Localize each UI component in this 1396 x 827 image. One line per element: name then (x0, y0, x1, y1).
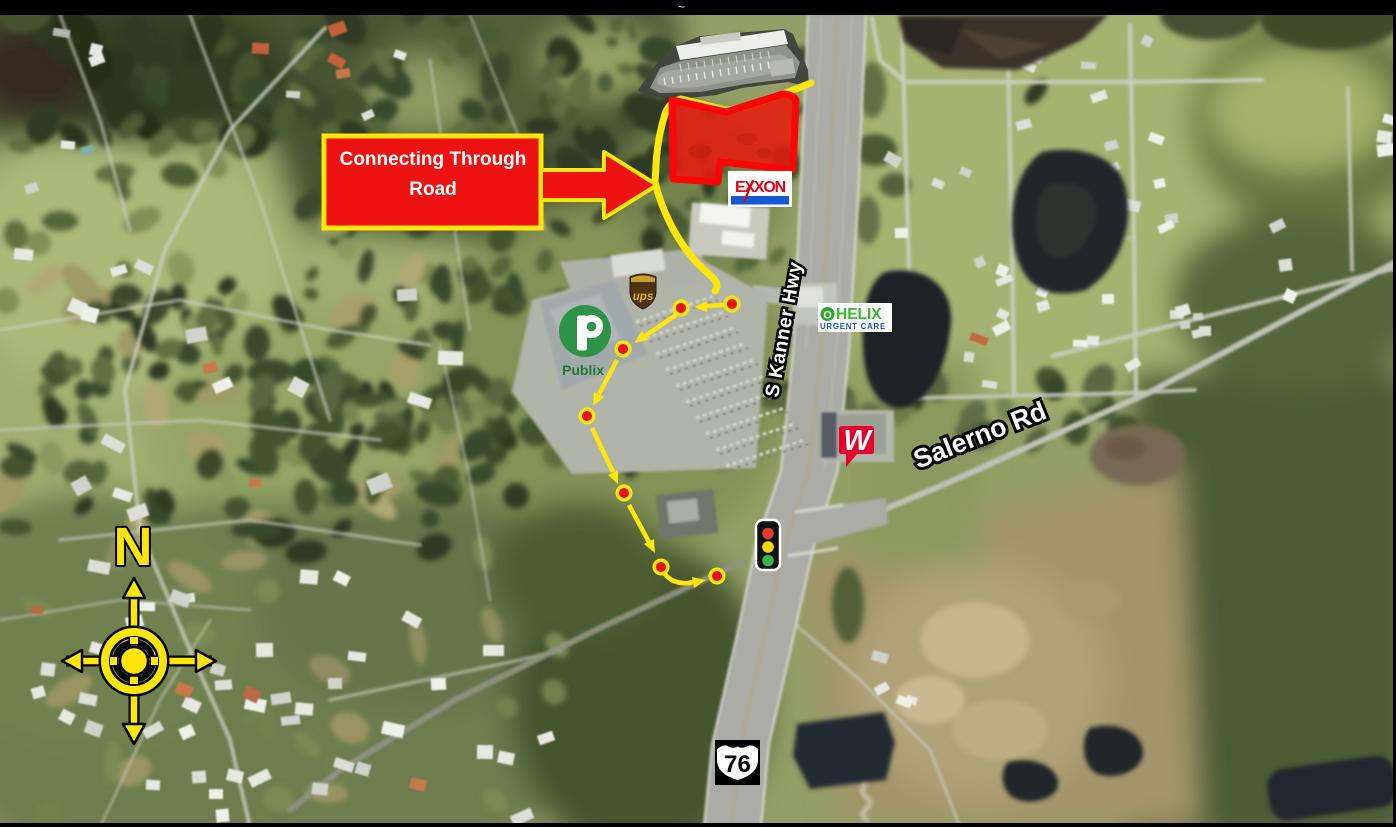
svg-text:Road: Road (409, 179, 457, 200)
svg-text:HELIX: HELIX (836, 306, 882, 323)
svg-text:EXXON: EXXON (735, 179, 786, 196)
svg-text:Connecting Through: Connecting Through (340, 149, 527, 170)
svg-text:O: O (823, 310, 832, 322)
svg-text:ups: ups (633, 291, 653, 303)
svg-text:URGENT CARE: URGENT CARE (820, 322, 886, 331)
svg-text:N: N (114, 517, 153, 577)
svg-text:W: W (843, 425, 873, 457)
svg-text:Publix: Publix (562, 362, 604, 378)
svg-text:~: ~ (678, 0, 685, 14)
svg-text:76: 76 (724, 751, 751, 778)
